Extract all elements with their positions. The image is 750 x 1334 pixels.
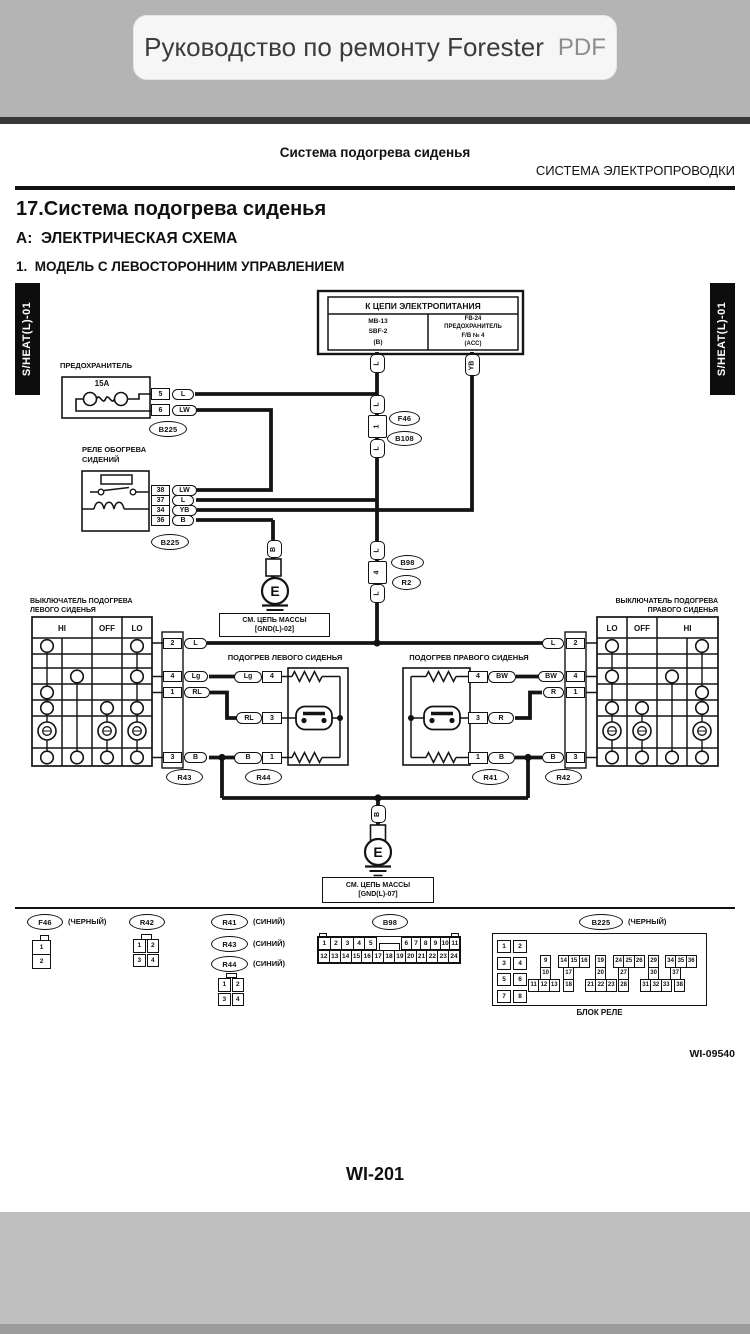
fuse-rating: 15A (82, 378, 122, 388)
pin-cell: 13 (549, 979, 560, 992)
bottom-strip (0, 1324, 750, 1334)
pin-cell: 30 (648, 967, 659, 980)
pin-cell: 38 (674, 979, 685, 992)
wire-label-L: L (370, 584, 385, 603)
pin-cell: 2 (232, 978, 245, 992)
wire-color-L: L (172, 389, 194, 400)
pin-cell: 23 (606, 979, 617, 992)
r44-pin-4: 4 (262, 671, 282, 683)
relay-internals (82, 475, 149, 509)
pinout-b225-pair-4: 78 (497, 990, 529, 1003)
pin-cell: 4 (147, 954, 160, 968)
power-box-title: К ЦЕПИ ЭЛЕКТРОПИТАНИЯ (328, 299, 518, 312)
wire-color-L: L (172, 495, 194, 506)
connector-b225-relay: B225 (151, 534, 189, 550)
left-switch-col-lo: LO (122, 620, 152, 636)
pinout-b225-pair-3: 56 (497, 973, 529, 986)
connector-r41: R41 (472, 769, 509, 785)
pin-cell: 19 (595, 955, 606, 968)
heater-right-internals (411, 672, 468, 763)
wire-color-YB: YB (172, 505, 197, 516)
connector-b225-fuse: B225 (149, 421, 187, 437)
wire-color-L: L (542, 638, 564, 649)
figure-code: WI-09540 (620, 1048, 735, 1060)
pin-cell: 10 (540, 967, 551, 980)
wire-label-B: B (371, 805, 386, 823)
wire-label-L: L (370, 395, 385, 414)
right-switch-col-off: OFF (627, 620, 657, 636)
pinout-r41-color: (СИНИЙ) (253, 917, 285, 926)
wire-color-B: B (184, 752, 207, 763)
pin-cell: 3 (497, 957, 511, 970)
pin-cell: 29 (648, 955, 659, 968)
connector-b98-inline: B98 (391, 555, 424, 570)
r42-pin-3: 3 (566, 752, 585, 763)
connector-r43: R43 (166, 769, 203, 785)
r43-pin-4: 4 (163, 671, 182, 682)
r42-pin-1: 1 (566, 687, 585, 698)
wire-color-B: B (234, 752, 262, 764)
ground-note-gnd07: СМ. ЦЕПЬ МАССЫ [GND(L)-07] (322, 877, 434, 903)
left-switch-title: ВЫКЛЮЧАТЕЛЬ ПОДОГРЕВА ЛЕВОГО СИДЕНЬЯ (30, 597, 133, 615)
pinout-r43-oval: R43 (211, 936, 248, 952)
wire-color-L: L (184, 638, 207, 649)
pinout-r44-color: (СИНИЙ) (253, 959, 285, 968)
pin-cell: 16 (579, 955, 590, 968)
wire-color-R: R (488, 712, 514, 724)
wire-label-L: L (370, 354, 385, 373)
component-boxes (62, 291, 586, 768)
pin-cell: 17 (563, 967, 574, 980)
pin-cell: 5 (364, 937, 377, 950)
wire-color-LW: LW (172, 485, 197, 496)
right-switch-col-hi: HI (657, 620, 718, 636)
wiring-diagram-svg (0, 0, 750, 1334)
wire-label-B: B (267, 540, 282, 558)
right-switch-col-lo: LO (597, 620, 627, 636)
connector-f46: F46 (389, 411, 420, 426)
pin-cell: 11 (449, 937, 460, 950)
pin-cell: 2 (147, 939, 160, 953)
pinout-b98-row1b: 67891011 (401, 937, 459, 950)
pin-cell: 26 (634, 955, 645, 968)
wire-color-RL: RL (236, 712, 262, 724)
pinout-b98-row2: 12131415161718192021222324 (318, 950, 459, 963)
pin-cell: 1 (133, 939, 146, 953)
r42-pin-2: 2 (566, 638, 585, 649)
inline-connector-pin-4: 4 (368, 561, 387, 584)
pinout-b225-oval: B225 (579, 914, 623, 930)
connector-r44: R44 (245, 769, 282, 785)
pinout-b225-caption: БЛОК РЕЛЕ (492, 1006, 707, 1018)
right-switch-title: ВЫКЛЮЧАТЕЛЬ ПОДОГРЕВА ПРАВОГО СИДЕНЬЯ (588, 597, 718, 615)
r43-pin-3: 3 (163, 752, 182, 763)
wire-color-Lg: Lg (184, 671, 208, 682)
pinout-r42-cells: 1234 (133, 939, 160, 967)
pinout-r41-oval: R41 (211, 914, 248, 930)
page-number: WI-201 (0, 1164, 750, 1185)
pin-cell: 20 (595, 967, 606, 980)
pinout-b225-pair-1: 12 (497, 940, 529, 953)
pin-cell: 18 (563, 979, 574, 992)
wire-color-Lg: Lg (234, 671, 262, 683)
r44-pin-1: 1 (262, 752, 282, 764)
pin-cell: 28 (618, 979, 629, 992)
pin-cell: 9 (540, 955, 551, 968)
relay-contacts (98, 489, 136, 495)
inline-connector-pin-1: 1 (368, 415, 387, 438)
pin-cell: 3 (133, 954, 146, 968)
pin-cell: 7 (497, 990, 511, 1003)
pin-cell: 27 (618, 967, 629, 980)
pin-cell: 36 (686, 955, 697, 968)
fuse-pin-6: 6 (151, 404, 170, 416)
heater-left-internals (282, 672, 340, 763)
pin-cell: 37 (670, 967, 681, 980)
wire-label-L: L (370, 439, 385, 458)
relay-title: РЕЛЕ ОБОГРЕВА СИДЕНИЙ (82, 445, 146, 465)
r41-pin-1: 1 (468, 752, 488, 764)
pinout-r42-oval: R42 (129, 914, 165, 930)
pin-cell: 2 (513, 940, 527, 953)
pinout-b98-row1a: 12345 (318, 937, 376, 950)
connector-r2: R2 (392, 575, 421, 590)
wire-color-RL: RL (184, 687, 210, 698)
pinout-f46-color: (ЧЕРНЫЙ) (68, 917, 106, 926)
pin-cell: 2 (32, 954, 51, 969)
wire-color-BW: BW (488, 671, 516, 683)
pin-cell: 33 (661, 979, 672, 992)
pin-cell: 4 (513, 957, 527, 970)
fuse-title: ПРЕДОХРАНИТЕЛЬ (60, 361, 132, 370)
pin-cell: 8 (513, 990, 527, 1003)
connector-b108: B108 (387, 431, 422, 446)
wire-color-B: B (172, 515, 194, 526)
pin-cell: 24 (448, 950, 460, 963)
wire-label-L: L (370, 541, 385, 560)
r41-pin-4: 4 (468, 671, 488, 683)
pinout-b225-pair-2: 34 (497, 957, 529, 970)
power-box-left-cell: MB-13 SBF-2 (B) (328, 316, 428, 349)
pinout-blue-cells: 1234 (218, 978, 245, 1006)
r41-pin-3: 3 (468, 712, 488, 724)
connector-r42: R42 (545, 769, 582, 785)
left-heater-title: ПОДОГРЕВ ЛЕВОГО СИДЕНЬЯ (220, 652, 350, 662)
pin-cell: 5 (497, 973, 511, 986)
left-switch-col-hi: HI (32, 620, 92, 636)
ground-symbol-E: E (262, 578, 288, 604)
pinout-separator (15, 907, 735, 909)
pdf-viewer-page: Руководство по ремонту Forester PDF Сист… (0, 0, 750, 1334)
pinout-f46-cells: 12 (32, 940, 51, 968)
pinout-f46-oval: F46 (27, 914, 63, 930)
pin-cell: 4 (232, 993, 245, 1007)
pinout-b225-color: (ЧЕРНЫЙ) (628, 917, 666, 926)
pinout-b98-oval: B98 (372, 914, 408, 930)
pin-cell: 1 (32, 940, 51, 955)
wire-color-B: B (542, 752, 564, 763)
ground-note-gnd02: СМ. ЦЕПЬ МАССЫ [GND(L)-02] (219, 613, 330, 637)
r43-pin-2: 2 (163, 638, 182, 649)
wire-color-R: R (543, 687, 564, 698)
pinout-r43-color: (СИНИЙ) (253, 939, 285, 948)
power-box-right-cell: FB-24 ПРЕДОХРАНИТЕЛЬ F/B № 4 (ACC) (428, 314, 518, 349)
bottom-bar (0, 1212, 750, 1334)
right-heater-title: ПОДОГРЕВ ПРАВОГО СИДЕНЬЯ (400, 652, 538, 662)
pin-cell: 6 (513, 973, 527, 986)
r42-pin-4: 4 (566, 671, 585, 682)
ground-symbol-E: E (365, 839, 391, 865)
wire-color-B: B (488, 752, 515, 764)
fuse-pin-5: 5 (151, 388, 170, 400)
r44-pin-3: 3 (262, 712, 282, 724)
relay-pin-36: 36 (151, 515, 170, 526)
pin-cell: 1 (497, 940, 511, 953)
wire-color-LW: LW (172, 405, 197, 416)
pin-cell: 3 (218, 993, 231, 1007)
r43-pin-1: 1 (163, 687, 182, 698)
pin-cell: 1 (218, 978, 231, 992)
left-switch-col-off: OFF (92, 620, 122, 636)
wire-label-YB: YB (465, 354, 480, 376)
wire-color-BW: BW (538, 671, 564, 682)
pinout-r44-oval: R44 (211, 956, 248, 972)
